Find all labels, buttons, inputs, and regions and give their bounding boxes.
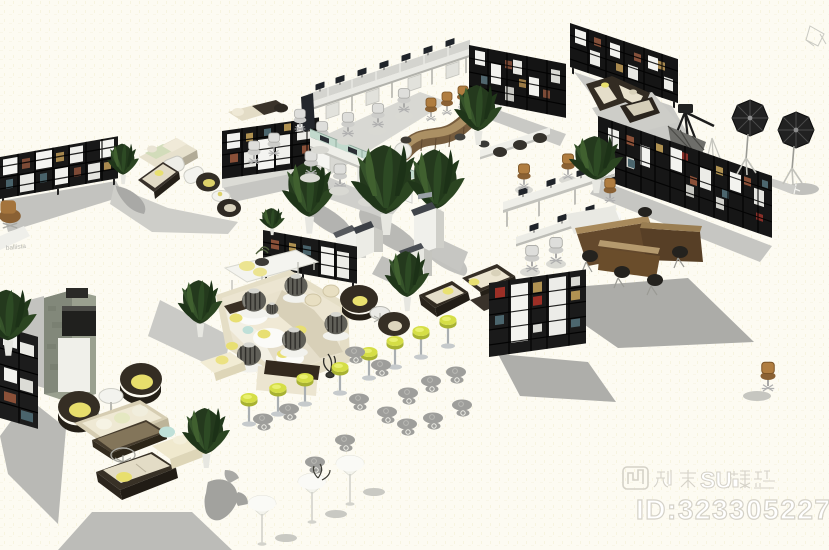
svg-text:ID:323305227: ID:323305227 <box>636 494 829 525</box>
svg-text:SU: SU <box>700 467 732 493</box>
